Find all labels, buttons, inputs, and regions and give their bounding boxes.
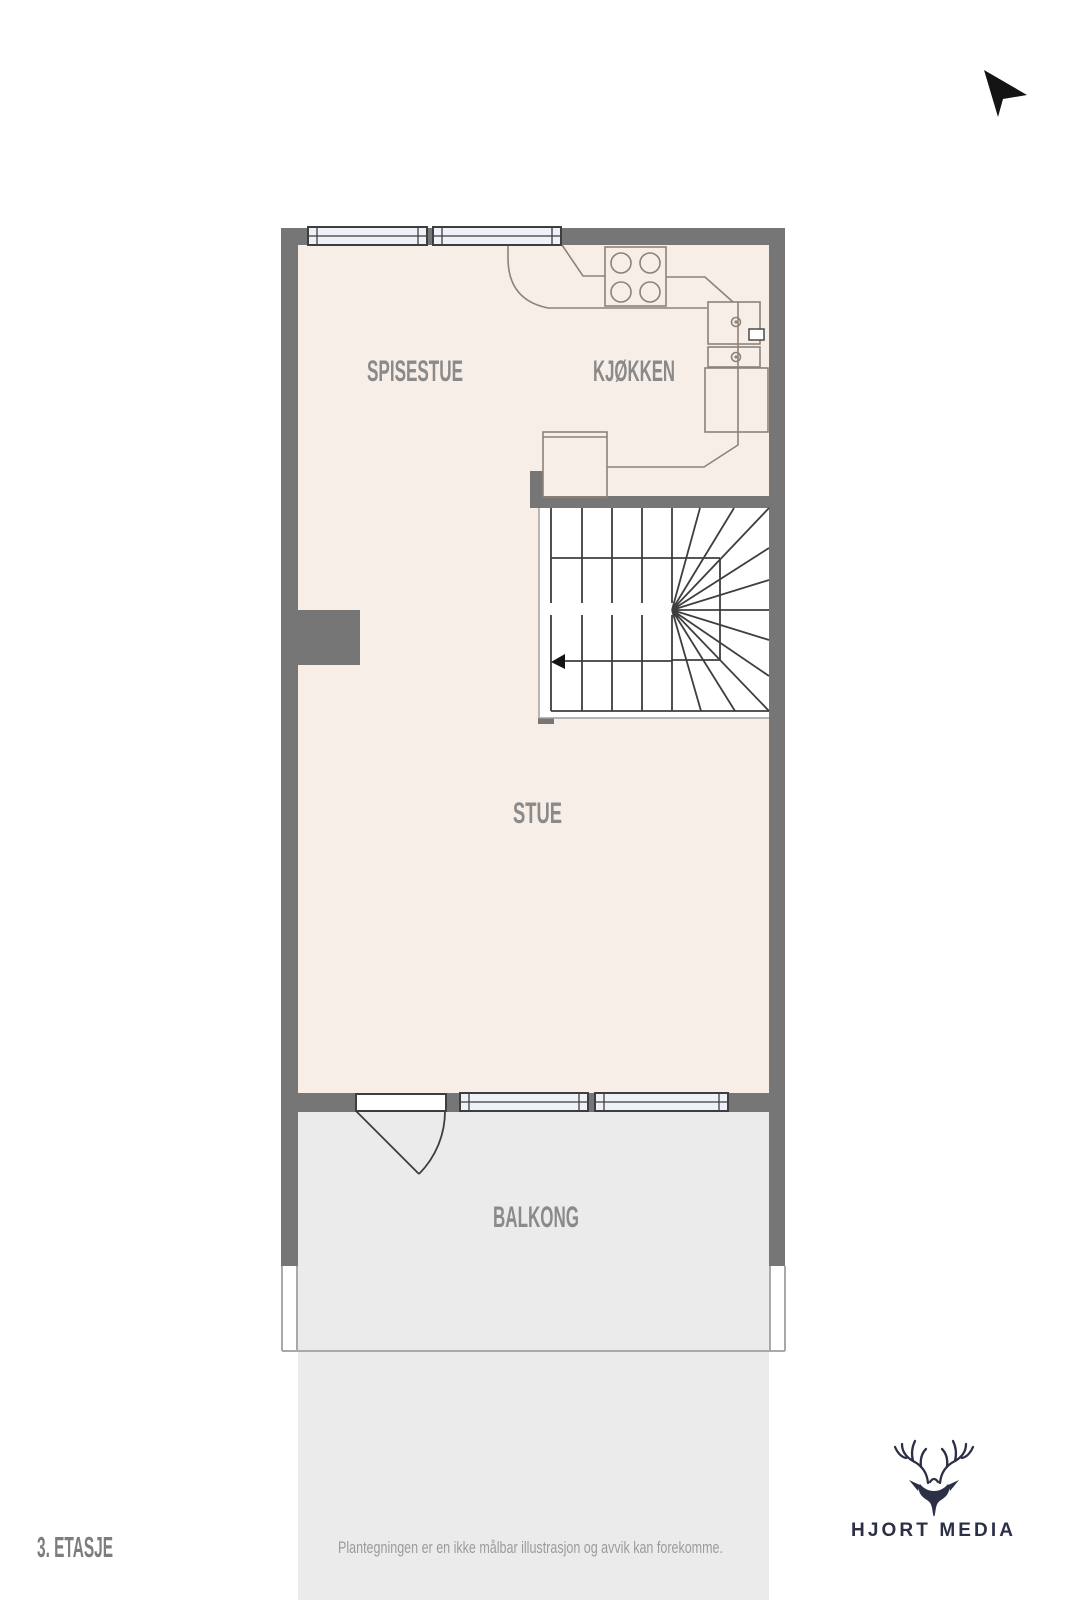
window-top-2 [433,227,561,245]
brand-logo-text: HJORT MEDIA [851,1520,1013,1541]
room-label-balcony: BALKONG [493,1201,579,1234]
floorplan-canvas: SPISESTUE KJØKKEN STUE BALKONG 3. ETASJE… [0,0,1067,1600]
floorplan-page: SPISESTUE KJØKKEN STUE BALKONG 3. ETASJE… [0,0,1067,1600]
room-label-living: STUE [513,797,562,830]
window-top-1 [308,227,427,245]
floor-level-label: 3. ETASJE [37,1532,113,1564]
north-arrow-icon [984,70,1027,117]
brand-logo: HJORT MEDIA [851,1441,1013,1541]
balcony-floor-area [298,1112,769,1600]
wall-pillar-protrusion [298,610,360,665]
window-balcony-1 [460,1093,588,1111]
disclaimer-text: Plantegningen er en ikke målbar illustra… [338,1538,723,1557]
floor-areas [298,245,769,1600]
door-opening [356,1094,446,1111]
staircase [538,508,769,718]
stairwell-area [538,508,769,718]
wall-fixture [749,329,764,340]
deer-head-antlers-icon [895,1441,973,1516]
window-balcony-2 [595,1093,728,1111]
room-label-dining: SPISESTUE [367,355,463,388]
room-label-kitchen: KJØKKEN [593,355,675,388]
wall-stairwell-stub [530,471,543,496]
